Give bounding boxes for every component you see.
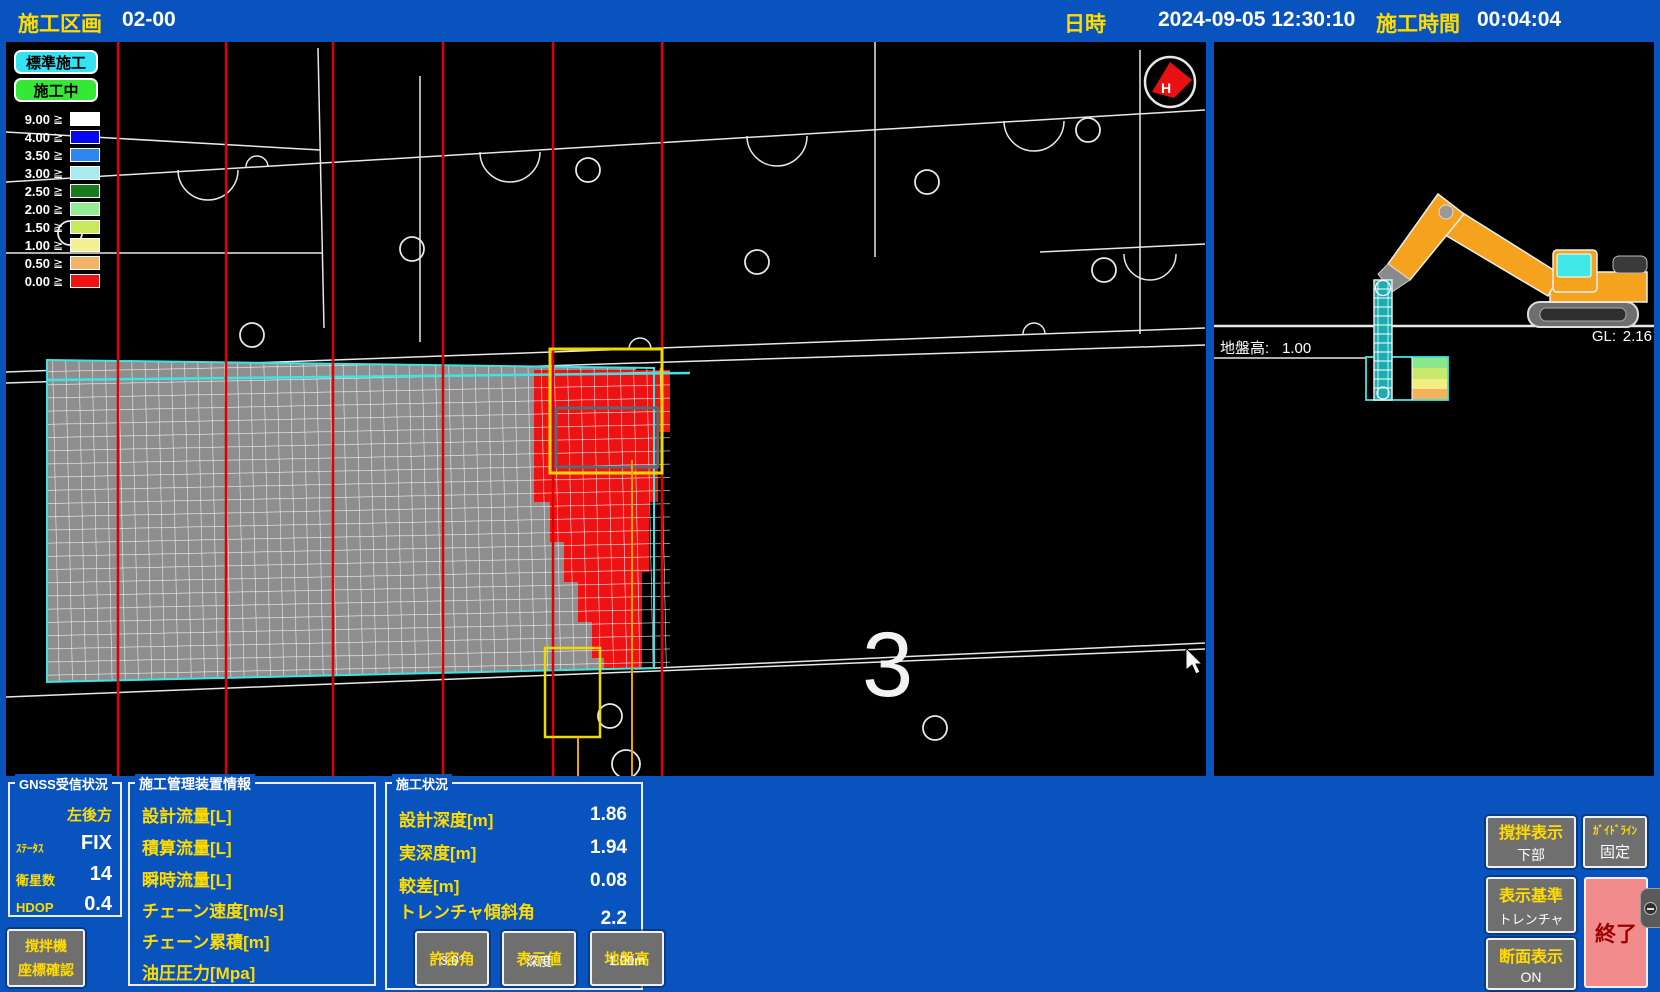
legend-swatch	[70, 166, 100, 180]
gl-label: GL:	[1592, 328, 1616, 345]
mixing-display-button[interactable]: 撹拌表示 下部	[1486, 816, 1576, 868]
legend-operator: ≧	[50, 238, 66, 252]
gnss-hdop-value: 0.4	[84, 893, 112, 916]
ground-height-label: 地盤高:	[1220, 340, 1269, 357]
section-display-button[interactable]: 断面表示 ON	[1486, 938, 1576, 990]
legend-value: 2.00	[14, 202, 50, 217]
depth-color-legend: 9.00≧ 4.00≧ 3.50≧ 3.00≧ 2.50≧ 2.00≧ 1.50…	[14, 110, 100, 290]
mixer-coordinate-button[interactable]: 撹拌機 座標確認	[7, 929, 85, 987]
display-reference-label: 表示基準	[1499, 882, 1563, 906]
legend-row: 0.50≧	[14, 254, 100, 272]
gnss-satellites-label: 衛星数	[16, 870, 55, 889]
legend-row: 1.50≧	[14, 218, 100, 236]
elapsed-label: 施工時間	[1376, 8, 1460, 38]
gnss-status-label: ｽﾃｰﾀｽ	[16, 840, 44, 856]
legend-row: 1.00≧	[14, 236, 100, 254]
legend-swatch	[70, 220, 100, 234]
gnss-satellites-value: 14	[90, 863, 112, 886]
legend-swatch	[70, 148, 100, 162]
guideline-value: 固定	[1600, 841, 1630, 862]
section-display-value: ON	[1521, 969, 1542, 985]
legend-swatch	[70, 202, 100, 216]
zone-number: 3	[862, 614, 913, 716]
section-display-label: 断面表示	[1499, 943, 1563, 967]
device-item: 瞬時流量[L]	[142, 866, 232, 891]
difference-value: 0.08	[590, 870, 627, 892]
difference-label: 較差[m]	[399, 872, 459, 897]
elapsed-value: 00:04:04	[1477, 8, 1561, 32]
legend-operator: ≧	[50, 274, 66, 288]
mode-button-standard[interactable]: 標準施工	[14, 50, 98, 74]
legend-swatch	[70, 274, 100, 288]
legend-swatch	[70, 184, 100, 198]
actual-depth-value: 1.94	[590, 837, 627, 859]
legend-operator: ≧	[50, 184, 66, 198]
section-label: 施工区画	[18, 8, 102, 38]
compass-icon: H	[1145, 57, 1195, 107]
legend-value: 9.00	[14, 112, 50, 127]
mixer-button-line2: 座標確認	[18, 960, 74, 980]
device-item: 油圧圧力[Mpa]	[142, 959, 255, 984]
design-depth-label: 設計深度[m]	[399, 806, 493, 831]
section-value: 02-00	[122, 8, 176, 32]
legend-operator: ≧	[50, 256, 66, 270]
plan-view-drawing: 3 H	[6, 42, 1206, 776]
allowable-angle-value: 3.0°	[440, 953, 463, 968]
section-view-canvas[interactable]: 地盤高: 1.00 GL: 2.16	[1214, 42, 1654, 776]
legend-row: 0.00≧	[14, 272, 100, 290]
mouse-cursor	[1186, 648, 1202, 674]
gnss-panel: GNSS受信状況 左後方 ｽﾃｰﾀｽ FIX 衛星数 14 HDOP 0.4	[8, 782, 122, 917]
construction-management-screen: 施工区画 02-00 日時 2024-09-05 12:30:10 施工時間 0…	[0, 0, 1660, 992]
mixing-display-label: 撹拌表示	[1499, 819, 1563, 843]
section-view-drawing: 地盤高: 1.00 GL: 2.16	[1214, 42, 1654, 776]
legend-operator: ≧	[50, 166, 66, 180]
legend-operator: ≧	[50, 148, 66, 162]
legend-swatch	[70, 256, 100, 270]
legend-value: 3.50	[14, 148, 50, 163]
allowable-angle-button[interactable]: 許容角 3.0°	[415, 931, 489, 986]
status-panel-title: 施工状況	[392, 774, 452, 793]
legend-swatch	[70, 238, 100, 252]
legend-operator: ≧	[50, 112, 66, 126]
legend-operator: ≧	[50, 130, 66, 144]
remote-support-tab[interactable]	[1640, 888, 1660, 928]
minimize-icon	[1644, 902, 1657, 915]
device-item: 設計流量[L]	[142, 802, 232, 827]
legend-row: 2.00≧	[14, 200, 100, 218]
legend-value: 1.50	[14, 220, 50, 235]
legend-swatch	[70, 130, 100, 144]
guideline-button[interactable]: ｶﾞｲﾄﾞﾗｲﾝ 固定	[1583, 816, 1647, 868]
display-value-button[interactable]: 表示値 深度	[502, 931, 576, 986]
display-reference-button[interactable]: 表示基準 トレンチャ	[1486, 877, 1576, 933]
legend-row: 3.50≧	[14, 146, 100, 164]
gnss-hdop-label: HDOP	[16, 900, 54, 915]
legend-operator: ≧	[50, 202, 66, 216]
actual-depth-label: 実深度[m]	[399, 839, 476, 864]
mixer-button-line1: 撹拌機	[25, 936, 67, 956]
gnss-panel-title: GNSS受信状況	[15, 774, 112, 793]
trencher-angle-label: トレンチャ傾斜角	[399, 898, 535, 923]
legend-panel: 標準施工 施工中 9.00≧ 4.00≧ 3.50≧ 3.00≧ 2.50≧ 2…	[14, 50, 100, 290]
legend-value: 3.00	[14, 166, 50, 181]
legend-swatch	[70, 112, 100, 126]
status-panel: 施工状況 設計深度[m] 1.86 実深度[m] 1.94 較差[m] 0.08…	[385, 782, 643, 990]
legend-row: 9.00≧	[14, 110, 100, 128]
ground-height-btn-value: 1.00m	[609, 953, 645, 968]
plan-view-canvas[interactable]: 3 H 標準施工 施工中 9.00≧ 4.00≧ 3.50≧ 3.00≧ 2.5…	[6, 42, 1206, 776]
legend-row: 3.00≧	[14, 164, 100, 182]
top-bar: 施工区画 02-00 日時 2024-09-05 12:30:10 施工時間 0…	[0, 0, 1660, 40]
legend-value: 4.00	[14, 130, 50, 145]
legend-value: 0.00	[14, 274, 50, 289]
ground-height-button[interactable]: 地盤高 1.00m	[590, 931, 664, 986]
device-panel-title: 施工管理装置情報	[135, 774, 255, 794]
ground-height-value: 1.00	[1282, 340, 1311, 357]
device-item: チェーン累積[m]	[142, 928, 270, 953]
guideline-label: ｶﾞｲﾄﾞﾗｲﾝ	[1593, 822, 1637, 838]
display-reference-value: トレンチャ	[1499, 909, 1564, 928]
legend-operator: ≧	[50, 220, 66, 234]
gl-value: 2.16	[1623, 328, 1652, 345]
design-depth-value: 1.86	[590, 804, 627, 826]
excavator-counterweight	[1613, 256, 1647, 273]
cab-window	[1557, 254, 1591, 277]
legend-value: 0.50	[14, 256, 50, 271]
gnss-status-value: FIX	[81, 832, 112, 855]
mixing-display-value: 下部	[1517, 845, 1545, 865]
display-value-mode: 深度	[526, 951, 552, 970]
legend-row: 4.00≧	[14, 128, 100, 146]
device-item: チェーン速度[m/s]	[142, 897, 284, 922]
device-info-panel: 施工管理装置情報 設計流量[L] 積算流量[L] 瞬時流量[L] チェーン速度[…	[128, 782, 376, 986]
device-item: 積算流量[L]	[142, 834, 232, 859]
trencher-angle-value: 2.2	[601, 908, 627, 930]
mode-button-working[interactable]: 施工中	[14, 78, 98, 102]
legend-value: 2.50	[14, 184, 50, 199]
datetime-label: 日時	[1064, 8, 1106, 38]
datetime-value: 2024-09-05 12:30:10	[1158, 8, 1355, 32]
compass-label: H	[1161, 80, 1171, 96]
trencher-bar	[1374, 280, 1392, 400]
legend-row: 2.50≧	[14, 182, 100, 200]
exit-button[interactable]: 終了	[1584, 877, 1648, 988]
legend-value: 1.00	[14, 238, 50, 253]
gnss-antenna: 左後方	[67, 804, 112, 825]
